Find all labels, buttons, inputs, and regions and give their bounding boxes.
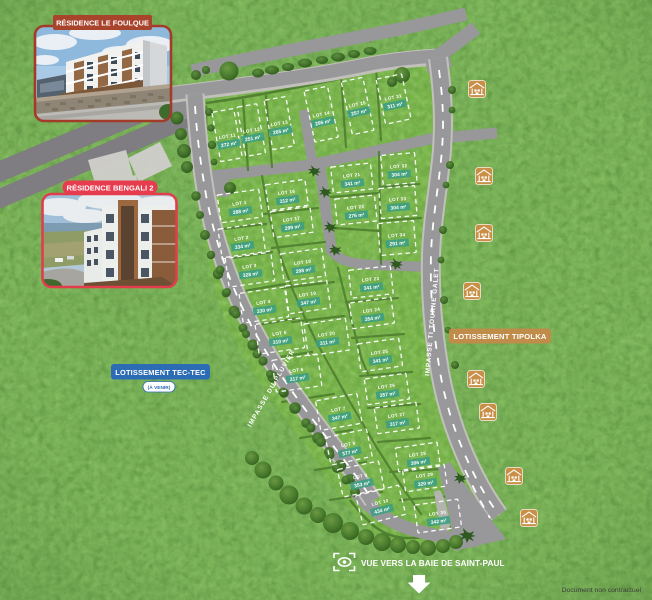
svg-text:LOTISSEMENT TIPOLKA: LOTISSEMENT TIPOLKA xyxy=(453,332,547,341)
svg-text:RÉSIDENCE BENGALI 2: RÉSIDENCE BENGALI 2 xyxy=(67,183,154,192)
svg-text:(À VENIR): (À VENIR) xyxy=(148,384,171,391)
svg-text:Document non contractuel: Document non contractuel xyxy=(562,587,642,594)
svg-text:RÉSIDENCE LE FOULQUE: RÉSIDENCE LE FOULQUE xyxy=(56,19,149,28)
svg-text:LOTISSEMENT TEC-TEC: LOTISSEMENT TEC-TEC xyxy=(115,368,206,377)
svg-text:VUE VERS LA BAIE DE SAINT-PAUL: VUE VERS LA BAIE DE SAINT-PAUL xyxy=(361,559,505,568)
